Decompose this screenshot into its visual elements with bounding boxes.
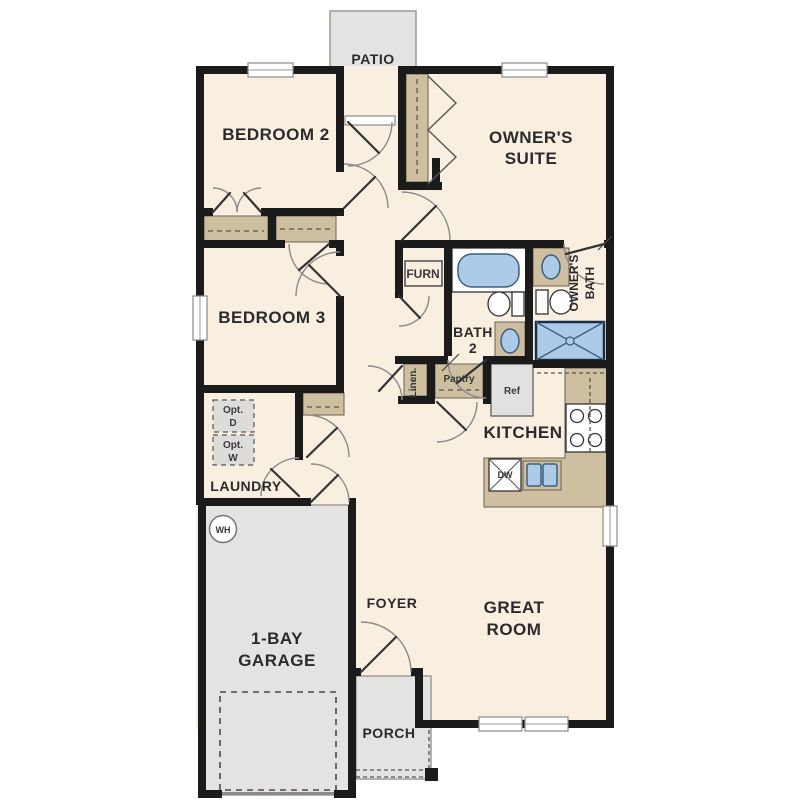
refrigerator-label: Ref: [504, 386, 521, 397]
wall-segment: [348, 505, 356, 798]
wall-segment: [427, 360, 435, 404]
toilet-icon-bath2: [488, 292, 524, 316]
kitchen-label: KITCHEN: [483, 423, 562, 442]
wall-segment: [444, 248, 452, 356]
window: [502, 63, 547, 77]
bathtub-icon: [458, 254, 519, 287]
garage-label: GARAGE: [238, 651, 316, 670]
linen-label: Linen: [408, 371, 419, 398]
window: [248, 63, 293, 77]
opt-dryer-label: D: [229, 418, 236, 429]
wall-segment: [452, 240, 564, 248]
garage-floor: [202, 505, 352, 795]
window: [525, 717, 568, 731]
foyer-label: FOYER: [367, 595, 418, 611]
great-room-label: ROOM: [487, 620, 542, 639]
stove-icon: [566, 404, 606, 452]
wall-segment: [486, 356, 533, 364]
owners-suite-label: OWNER'S: [489, 128, 573, 147]
coat-closet-shelf: [303, 393, 344, 415]
laundry-label: LAUNDRY: [210, 478, 282, 494]
sink-icon-bath2: [501, 329, 519, 353]
furnace-label: FURN: [406, 267, 439, 281]
window: [193, 296, 207, 340]
dishwasher-label: DW: [498, 470, 513, 480]
window: [603, 506, 617, 546]
bedroom2-label: BEDROOM 2: [222, 125, 329, 144]
wall-segment: [329, 240, 344, 248]
garage-door-line: [222, 792, 334, 795]
wall-segment: [395, 356, 448, 364]
patio-label: PATIO: [351, 51, 394, 67]
wall-segment: [483, 356, 491, 404]
wall-segment: [198, 498, 311, 506]
opt-washer-label: W: [228, 453, 238, 464]
floor-plan-page: PATIO BEDROOM 2 OWNER'S SUITE BEDROOM 3 …: [0, 0, 810, 810]
bath2-label: 2: [469, 340, 477, 356]
owners-bath-label: BATH: [583, 267, 597, 299]
bedroom2-closet-shelf: [204, 216, 268, 242]
wall-segment: [604, 240, 614, 248]
wall-segment: [295, 393, 303, 460]
wall-segment: [336, 296, 344, 393]
bath2-label: BATH: [453, 324, 493, 340]
window: [479, 717, 522, 731]
floor-plan-drawing: PATIO BEDROOM 2 OWNER'S SUITE BEDROOM 3 …: [0, 0, 810, 810]
wall-segment: [395, 240, 452, 248]
wall-segment: [398, 66, 406, 188]
shower-icon: [536, 322, 604, 360]
wall-segment: [395, 248, 403, 298]
wall-segment: [336, 66, 344, 172]
porch-label: PORCH: [362, 725, 415, 741]
wall-segment: [432, 158, 440, 186]
garage-label: 1-BAY: [251, 629, 303, 648]
owners-suite-label: SUITE: [505, 149, 558, 168]
opt-dryer-label: Opt.: [223, 405, 243, 416]
wall-segment: [411, 668, 423, 676]
wall-segment: [349, 498, 356, 506]
wall-segment: [196, 66, 204, 505]
opt-washer-label: Opt.: [223, 440, 243, 451]
pantry-label: Pantry: [443, 374, 475, 385]
owners-bath-label: OWNER'S: [567, 255, 581, 312]
wall-segment: [268, 212, 276, 248]
great-room-label: GREAT: [484, 598, 545, 617]
water-heater-label: WH: [216, 525, 231, 535]
bedroom3-label: BEDROOM 3: [218, 308, 325, 327]
wall-segment: [198, 505, 206, 798]
wall-segment: [525, 248, 533, 360]
wall-segment: [606, 66, 614, 728]
porch-post: [425, 768, 438, 781]
sink-icon-owners-bath: [542, 255, 560, 279]
wall-segment: [533, 360, 614, 368]
wall-segment: [415, 676, 423, 728]
wall-segment: [196, 385, 344, 393]
wall-segment: [196, 208, 213, 216]
